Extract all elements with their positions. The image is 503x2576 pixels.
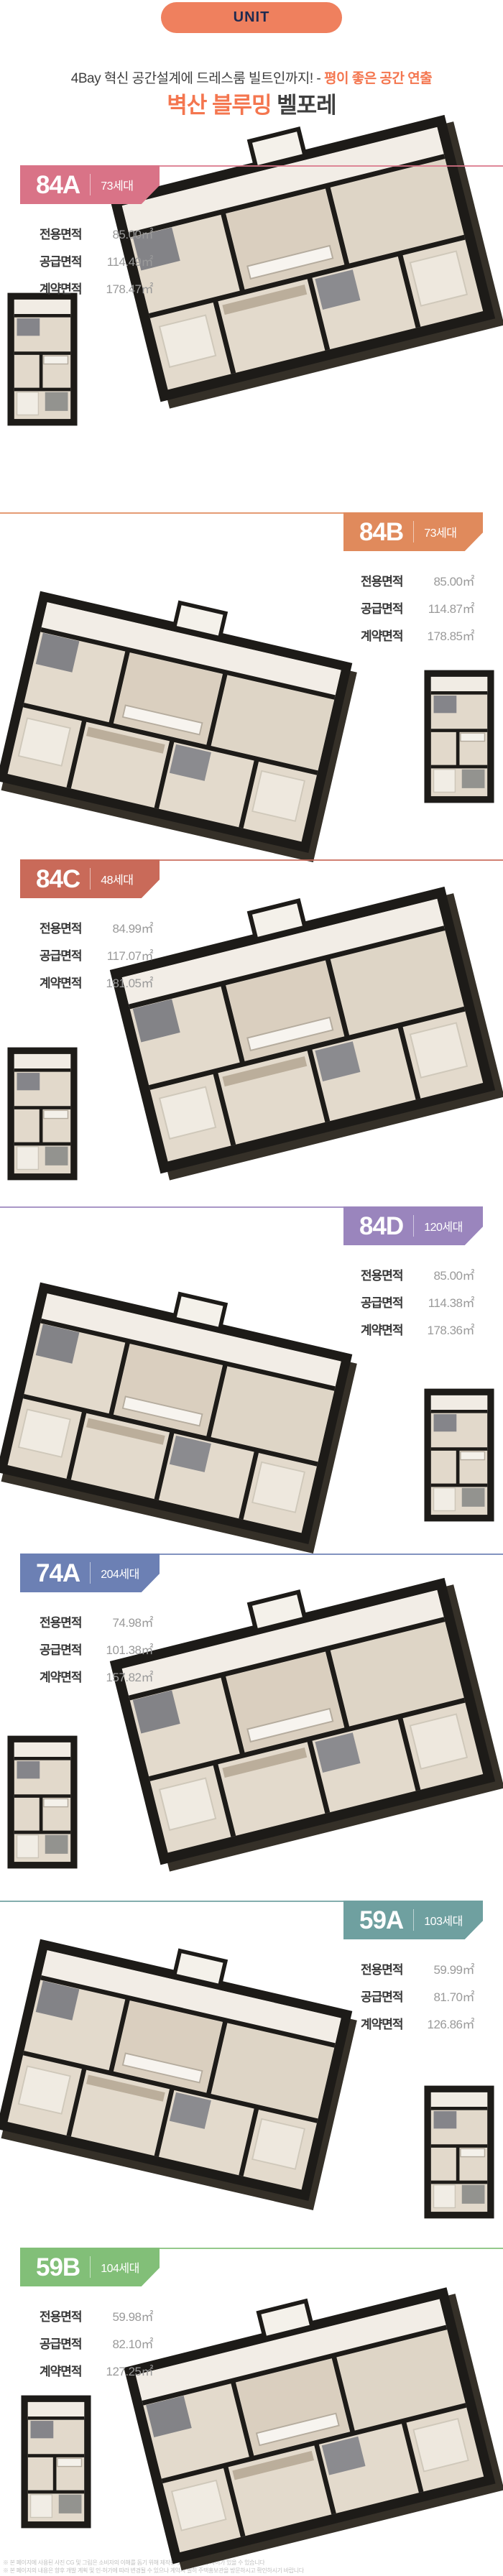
floorplan-2d-diagram	[2, 1043, 83, 1184]
unit-section: 84B 73세대 전용면적 85.00㎡ 공급면적 114.87㎡ 계약면적 1…	[0, 512, 503, 859]
spec-label: 공급면적	[40, 946, 82, 964]
unit-section: 84C 48세대 전용면적 84.99㎡ 공급면적 117.07㎡ 계약면적 1…	[0, 859, 503, 1206]
spec-value: 178.85㎡	[428, 626, 475, 644]
spec-value: 85.00㎡	[433, 1265, 474, 1283]
floorplan-3d-render	[101, 118, 503, 405]
spec-value: 74.98㎡	[112, 1612, 153, 1630]
spec-row: 계약면적 126.86㎡	[361, 2014, 474, 2032]
spec-label: 공급면적	[40, 251, 82, 269]
spec-row: 전용면적 59.99㎡	[361, 1959, 474, 1977]
spec-row: 계약면적 157.82㎡	[40, 1667, 153, 1685]
unit-type-badge: 84A 73세대	[20, 165, 160, 204]
spec-value: 126.86㎡	[428, 2014, 475, 2032]
floorplan-3d-render	[0, 584, 359, 864]
spec-value: 114.38㎡	[428, 1293, 474, 1311]
unit-code-label: 59B	[36, 2255, 80, 2280]
spec-row: 전용면적 85.00㎡	[40, 224, 153, 242]
unit-section: 74A 204세대 전용면적 74.98㎡ 공급면적 101.38㎡ 계약면적 …	[0, 1554, 503, 1901]
unit-code-label: 84A	[36, 172, 80, 198]
spec-row: 계약면적 181.05㎡	[40, 973, 153, 991]
floorplan-3d-render	[101, 890, 503, 1177]
spec-value: 59.98㎡	[112, 2307, 153, 2325]
spec-label: 계약면적	[361, 1320, 403, 1338]
spec-label: 전용면적	[361, 1265, 403, 1283]
badge-divider	[90, 1562, 91, 1584]
unit-households-label: 104세대	[101, 2258, 139, 2276]
unit-households-label: 73세대	[101, 176, 133, 193]
badge-extension-line	[0, 1901, 343, 1902]
spec-row: 공급면적 81.70㎡	[361, 1987, 474, 2005]
unit-code-label: 59A	[359, 1908, 403, 1933]
spec-value: 127.25㎡	[106, 2361, 154, 2379]
spec-value: 81.70㎡	[433, 1987, 474, 2005]
unit-households-label: 204세대	[101, 1564, 139, 1582]
badge-extension-line	[0, 512, 343, 514]
unit-code-label: 84B	[359, 520, 403, 545]
area-spec-list: 전용면적 59.99㎡ 공급면적 81.70㎡ 계약면적 126.86㎡	[361, 1959, 474, 2041]
spec-row: 계약면적 178.47㎡	[40, 279, 153, 297]
unit-households-label: 120세대	[424, 1217, 463, 1234]
badge-extension-line	[160, 1554, 503, 1555]
spec-row: 공급면적 114.38㎡	[361, 1293, 474, 1311]
unit-section: 59A 103세대 전용면적 59.99㎡ 공급면적 81.70㎡ 계약면적 1…	[0, 1901, 503, 2248]
headline: 4Bay 혁신 공간설계에 드레스룸 빌트인까지! - 평이 좋은 공간 연출	[0, 68, 503, 87]
floorplan-2d-diagram	[2, 1732, 83, 1873]
badge-divider	[90, 868, 91, 890]
unit-section: 59B 104세대 전용면적 59.98㎡ 공급면적 82.10㎡ 계약면적 1…	[0, 2248, 503, 2554]
spec-row: 공급면적 101.38㎡	[40, 1640, 153, 1658]
unit-type-badge: 59B 104세대	[20, 2248, 160, 2286]
floorplan-2d-diagram	[16, 2391, 96, 2532]
spec-label: 공급면적	[361, 1293, 403, 1311]
badge-extension-line	[160, 859, 503, 861]
spec-row: 공급면적 114.49㎡	[40, 251, 153, 269]
unit-code-label: 84C	[36, 867, 80, 892]
spec-value: 178.47㎡	[106, 279, 154, 297]
spec-value: 59.99㎡	[433, 1959, 474, 1977]
spec-label: 공급면적	[40, 1640, 82, 1658]
page: UNIT 4Bay 혁신 공간설계에 드레스룸 빌트인까지! - 평이 좋은 공…	[0, 0, 503, 2576]
spec-value: 181.05㎡	[106, 973, 154, 991]
spec-value: 82.10㎡	[112, 2334, 153, 2352]
spec-row: 전용면적 84.99㎡	[40, 918, 153, 936]
spec-label: 전용면적	[40, 918, 82, 936]
spec-label: 계약면적	[40, 973, 82, 991]
spec-value: 114.49㎡	[107, 251, 153, 269]
unit-type-badge: 84C 48세대	[20, 859, 160, 898]
spec-value: 117.07㎡	[107, 946, 153, 964]
spec-label: 전용면적	[40, 2307, 82, 2325]
unit-type-badge: 59A 103세대	[343, 1901, 483, 1939]
spec-value: 84.99㎡	[112, 918, 153, 936]
area-spec-list: 전용면적 85.00㎡ 공급면적 114.87㎡ 계약면적 178.85㎡	[361, 571, 474, 653]
spec-label: 공급면적	[40, 2334, 82, 2352]
spec-label: 계약면적	[40, 279, 82, 297]
spec-row: 공급면적 82.10㎡	[40, 2334, 153, 2352]
spec-row: 전용면적 74.98㎡	[40, 1612, 153, 1630]
floorplan-2d-diagram	[419, 2082, 499, 2222]
unit-banner-label: UNIT	[234, 9, 270, 26]
floorplan-2d-diagram	[419, 666, 499, 807]
spec-row: 계약면적 178.36㎡	[361, 1320, 474, 1338]
badge-divider	[413, 521, 414, 543]
spec-row: 계약면적 127.25㎡	[40, 2361, 153, 2379]
badge-divider	[413, 1909, 414, 1931]
unit-code-label: 74A	[36, 1561, 80, 1586]
unit-households-label: 73세대	[424, 523, 456, 540]
badge-divider	[413, 1215, 414, 1237]
headline-accent-text: 평이 좋은 공간 연출	[324, 71, 432, 86]
spec-label: 공급면적	[361, 1987, 403, 2005]
area-spec-list: 전용면적 85.00㎡ 공급면적 114.38㎡ 계약면적 178.36㎡	[361, 1265, 474, 1347]
area-spec-list: 전용면적 84.99㎡ 공급면적 117.07㎡ 계약면적 181.05㎡	[40, 918, 153, 1000]
badge-divider	[90, 2256, 91, 2278]
title-name-text: 벨포레	[272, 93, 336, 118]
spec-label: 전용면적	[40, 1612, 82, 1630]
page-title: 벽산 블루밍 벨포레	[0, 87, 503, 119]
spec-row: 공급면적 114.87㎡	[361, 599, 474, 617]
unit-sections-container: 84A 73세대 전용면적 85.00㎡ 공급면적 114.49㎡ 계약면적 1…	[0, 165, 503, 2554]
spec-value: 114.87㎡	[428, 599, 474, 617]
floorplan-2d-diagram	[419, 1385, 499, 1525]
floorplan-3d-render	[101, 1581, 503, 1868]
area-spec-list: 전용면적 59.98㎡ 공급면적 82.10㎡ 계약면적 127.25㎡	[40, 2307, 153, 2388]
spec-value: 178.36㎡	[428, 1320, 475, 1338]
unit-section-banner: UNIT	[161, 2, 342, 33]
badge-divider	[90, 174, 91, 195]
spec-value: 85.00㎡	[433, 571, 474, 589]
floorplan-3d-render	[115, 2285, 503, 2572]
unit-type-badge: 84D 120세대	[343, 1206, 483, 1245]
spec-row: 공급면적 117.07㎡	[40, 946, 153, 964]
spec-value: 101.38㎡	[106, 1640, 154, 1658]
spec-value: 85.00㎡	[112, 224, 153, 242]
spec-row: 전용면적 59.98㎡	[40, 2307, 153, 2325]
area-spec-list: 전용면적 74.98㎡ 공급면적 101.38㎡ 계약면적 157.82㎡	[40, 1612, 153, 1694]
unit-households-label: 48세대	[101, 870, 133, 887]
spec-value: 157.82㎡	[106, 1667, 154, 1685]
spec-row: 전용면적 85.00㎡	[361, 571, 474, 589]
unit-households-label: 103세대	[424, 1911, 463, 1929]
spec-label: 계약면적	[361, 626, 403, 644]
floorplan-3d-render	[0, 1932, 359, 2212]
badge-extension-line	[160, 165, 503, 167]
floorplan-2d-diagram	[2, 289, 83, 430]
unit-type-badge: 84B 73세대	[343, 512, 483, 551]
title-brand-text: 벽산 블루밍	[167, 93, 271, 118]
spec-label: 계약면적	[361, 2014, 403, 2032]
unit-section: 84A 73세대 전용면적 85.00㎡ 공급면적 114.49㎡ 계약면적 1…	[0, 165, 503, 512]
spec-label: 공급면적	[361, 599, 403, 617]
area-spec-list: 전용면적 85.00㎡ 공급면적 114.49㎡ 계약면적 178.47㎡	[40, 224, 153, 306]
spec-row: 계약면적 178.85㎡	[361, 626, 474, 644]
spec-label: 전용면적	[40, 224, 82, 242]
spec-row: 전용면적 85.00㎡	[361, 1265, 474, 1283]
spec-label: 전용면적	[361, 1959, 403, 1977]
spec-label: 계약면적	[40, 2361, 82, 2379]
unit-code-label: 84D	[359, 1214, 403, 1239]
spec-label: 전용면적	[361, 571, 403, 589]
unit-type-badge: 74A 204세대	[20, 1554, 160, 1592]
spec-label: 계약면적	[40, 1667, 82, 1685]
badge-extension-line	[160, 2248, 503, 2249]
unit-section: 84D 120세대 전용면적 85.00㎡ 공급면적 114.38㎡ 계약면적 …	[0, 1206, 503, 1554]
floorplan-3d-render	[0, 1275, 359, 1556]
headline-normal-text: 4Bay 혁신 공간설계에 드레스룸 빌트인까지! -	[71, 71, 324, 86]
badge-extension-line	[0, 1206, 343, 1208]
